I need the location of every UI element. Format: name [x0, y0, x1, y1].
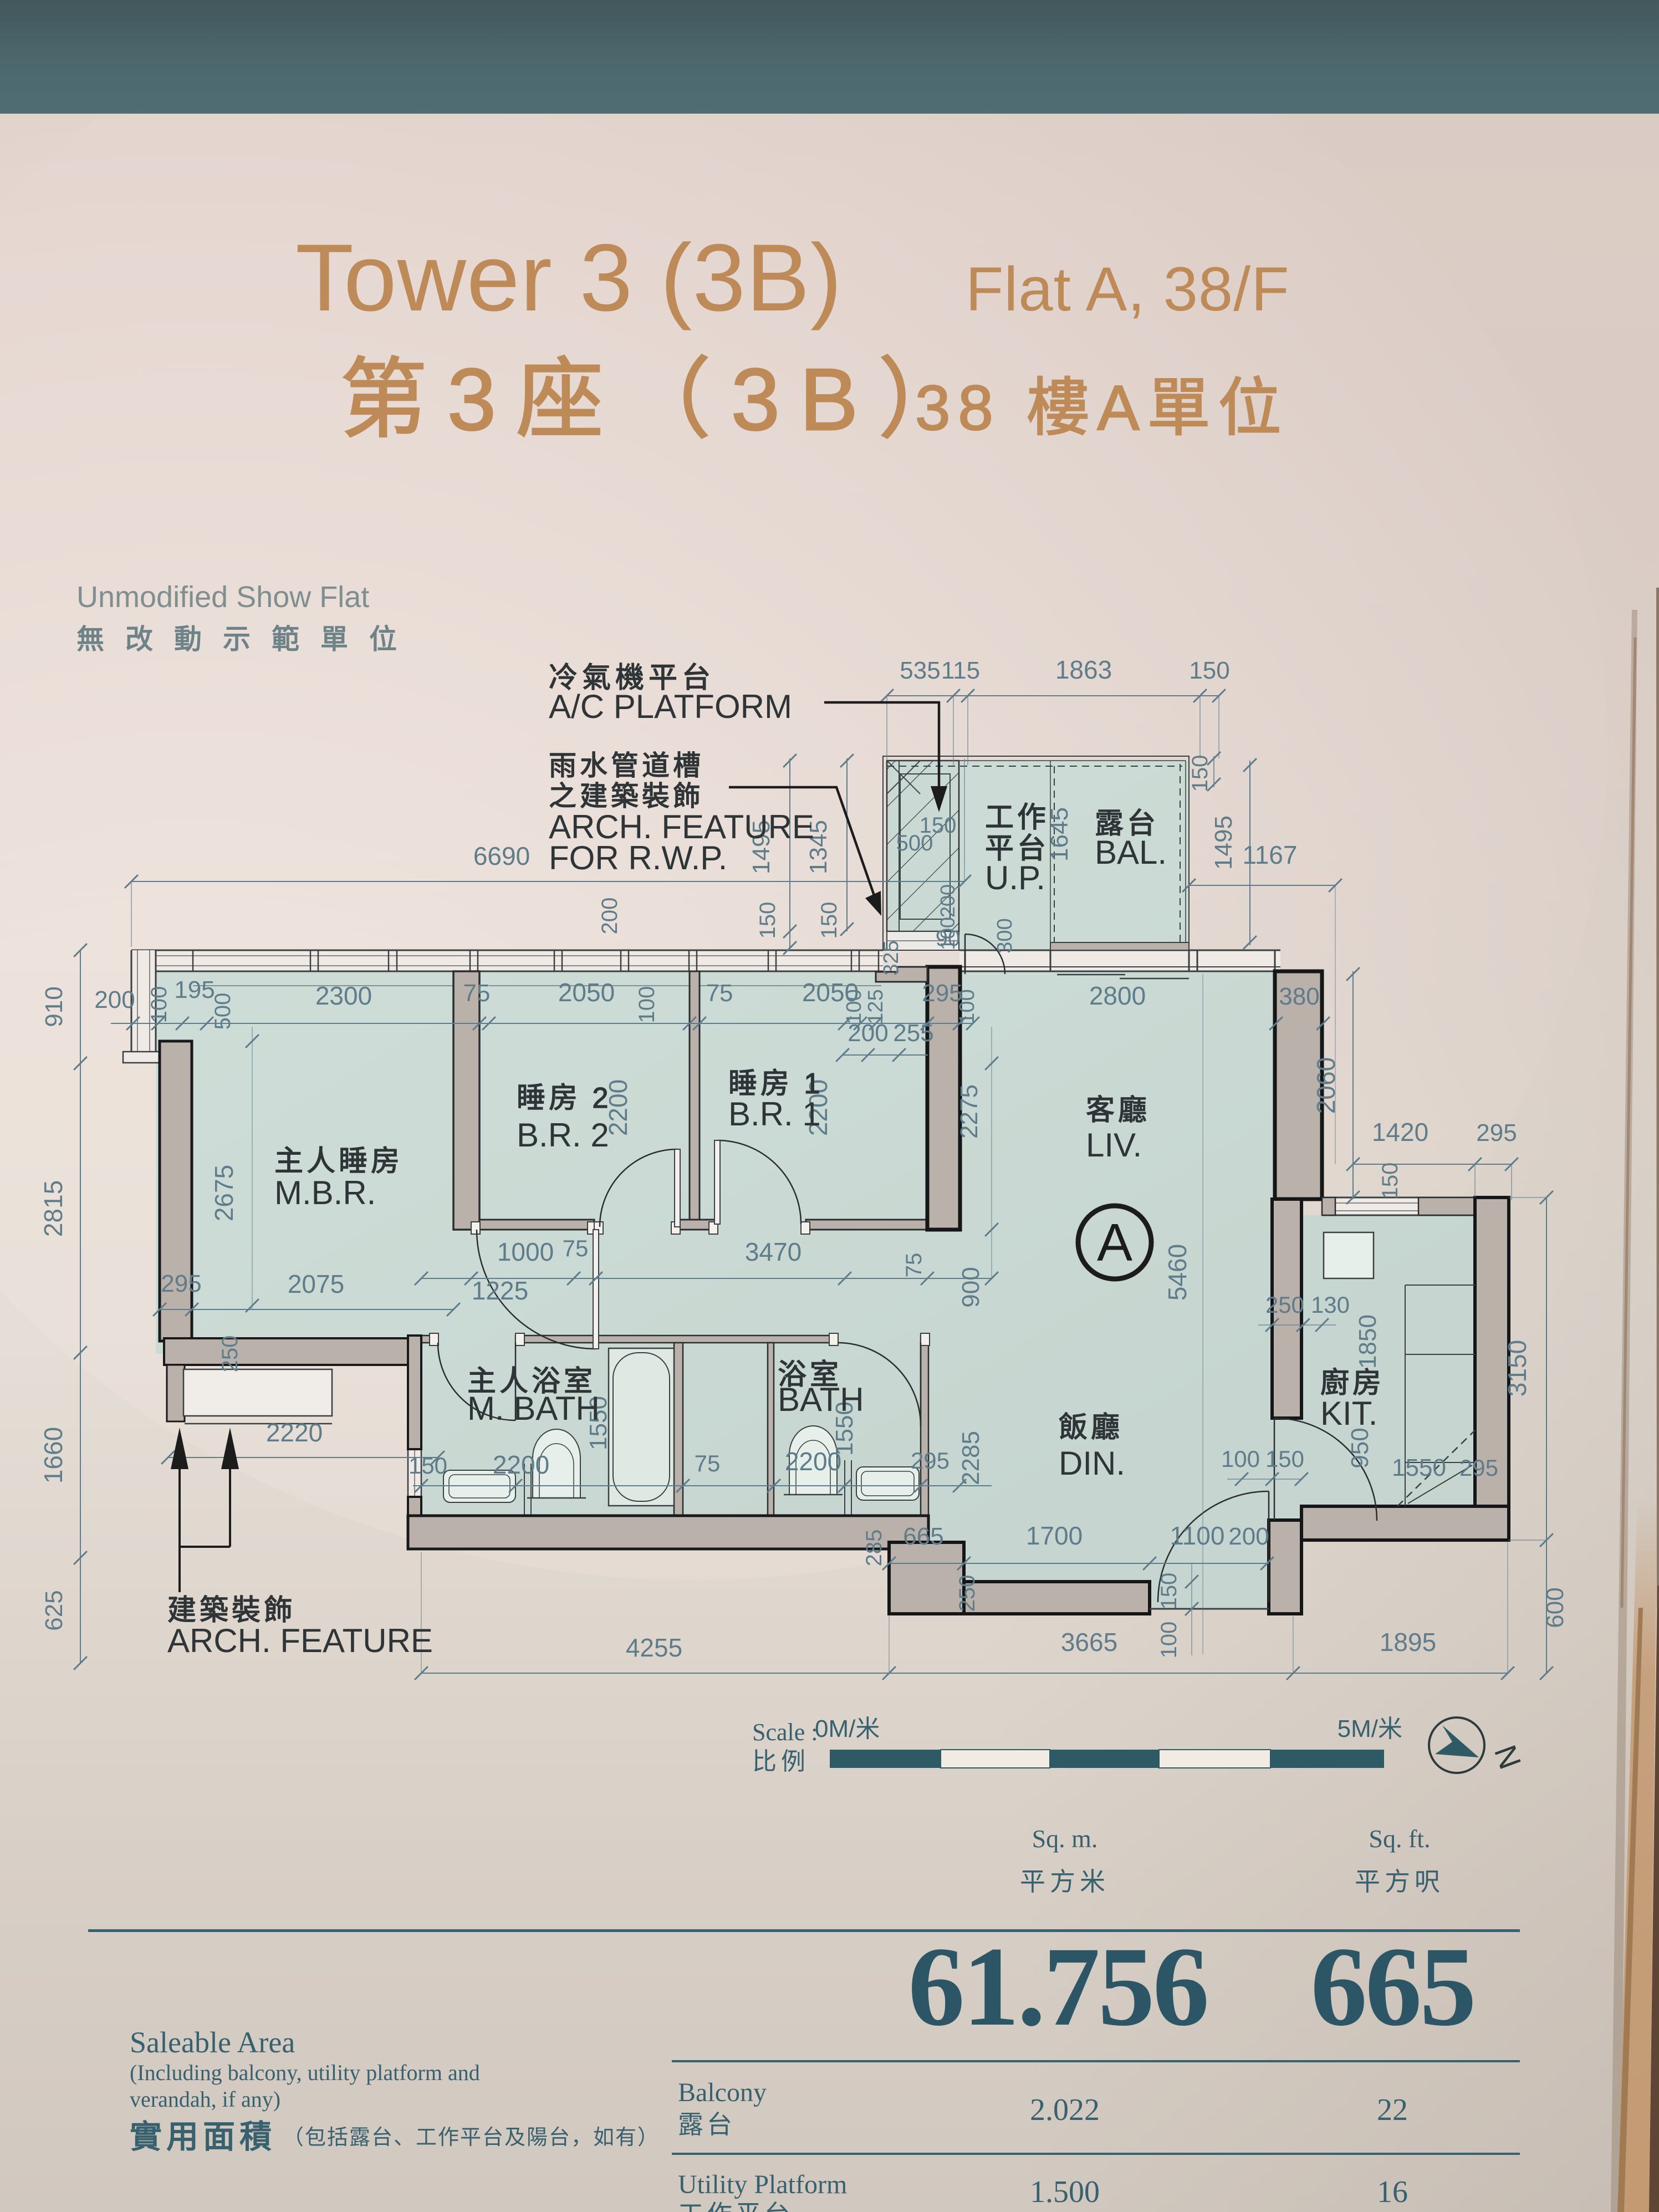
svg-text:250: 250	[1265, 1292, 1304, 1318]
svg-text:295: 295	[911, 1448, 950, 1474]
svg-text:295: 295	[161, 1270, 201, 1297]
svg-text:6690: 6690	[473, 842, 530, 870]
svg-text:工作平台: 工作平台	[678, 2200, 793, 2212]
svg-text:1700: 1700	[1026, 1521, 1083, 1550]
svg-text:1000: 1000	[497, 1237, 554, 1266]
svg-text:Tower 3 (3B): Tower 3 (3B)	[295, 225, 843, 331]
svg-text:500: 500	[211, 993, 235, 1030]
svg-text:2675: 2675	[210, 1165, 238, 1221]
svg-text:200: 200	[848, 1020, 888, 1047]
svg-text:2800: 2800	[1089, 981, 1146, 1010]
svg-text:3470: 3470	[745, 1237, 802, 1266]
svg-text:100: 100	[1157, 1622, 1181, 1659]
svg-text:A: A	[1097, 1213, 1132, 1272]
svg-text:150: 150	[920, 813, 957, 838]
svg-text:100: 100	[956, 989, 979, 1024]
svg-text:1100: 1100	[1170, 1521, 1225, 1550]
svg-text:露台: 露台	[678, 2110, 736, 2139]
svg-text:之建築裝飾: 之建築裝飾	[549, 781, 704, 812]
svg-text:睡房 2: 睡房 2	[517, 1082, 611, 1114]
svg-text:75: 75	[563, 1235, 589, 1261]
svg-text:B.R. 2: B.R. 2	[517, 1117, 609, 1154]
svg-text:Unmodified Show Flat: Unmodified Show Flat	[76, 580, 369, 614]
svg-text:1895: 1895	[1380, 1628, 1436, 1657]
svg-text:195: 195	[174, 976, 215, 1003]
svg-text:115: 115	[941, 657, 980, 684]
svg-text:BATH: BATH	[778, 1381, 864, 1418]
svg-text:（包括露台、工作平台及陽台，如有）: （包括露台、工作平台及陽台，如有）	[283, 2126, 660, 2149]
svg-text:Balcony: Balcony	[678, 2078, 767, 2107]
svg-text:130: 130	[1311, 1292, 1350, 1318]
svg-text:665: 665	[903, 1523, 943, 1550]
svg-text:0M/米: 0M/米	[815, 1715, 880, 1742]
svg-text:實用面積: 實用面積	[130, 2119, 276, 2155]
svg-text:1863: 1863	[1055, 655, 1112, 684]
svg-text:150: 150	[1188, 755, 1212, 792]
svg-text:ARCH. FEATURE: ARCH. FEATURE	[167, 1622, 433, 1659]
svg-text:2200: 2200	[493, 1450, 549, 1479]
svg-text:A/C PLATFORM: A/C PLATFORM	[549, 688, 792, 725]
svg-text:295: 295	[1459, 1455, 1498, 1481]
svg-text:DIN.: DIN.	[1059, 1445, 1125, 1482]
svg-text:150: 150	[817, 902, 841, 939]
svg-text:1.500: 1.500	[1030, 2175, 1100, 2209]
svg-text:625: 625	[40, 1590, 68, 1630]
svg-text:100: 100	[147, 986, 171, 1023]
svg-text:150: 150	[1157, 1573, 1181, 1610]
svg-text:250: 250	[955, 1575, 979, 1612]
svg-text:910: 910	[40, 986, 68, 1027]
svg-text:300: 300	[993, 918, 1017, 953]
svg-text:M. BATH: M. BATH	[467, 1390, 600, 1427]
svg-text:第3座（3B）: 第3座（3B）	[340, 351, 986, 448]
svg-text:5460: 5460	[1163, 1244, 1192, 1301]
svg-text:U.P.: U.P.	[985, 859, 1045, 896]
svg-text:600: 600	[1541, 1587, 1569, 1628]
svg-text:3665: 3665	[1061, 1628, 1117, 1657]
svg-text:900: 900	[957, 1267, 984, 1307]
svg-text:75: 75	[695, 1450, 721, 1476]
svg-text:3150: 3150	[1503, 1340, 1532, 1396]
svg-text:主人睡房: 主人睡房	[274, 1145, 403, 1178]
svg-text:150: 150	[1265, 1446, 1304, 1472]
svg-text:2050: 2050	[558, 978, 615, 1007]
svg-text:FOR R.W.P.: FOR R.W.P.	[549, 839, 727, 876]
svg-text:200: 200	[936, 884, 959, 918]
svg-text:285: 285	[862, 1530, 886, 1567]
svg-text:75: 75	[463, 980, 491, 1007]
svg-text:雨水管道槽: 雨水管道槽	[549, 750, 704, 781]
svg-text:2285: 2285	[957, 1431, 984, 1485]
svg-text:1225: 1225	[472, 1276, 528, 1305]
svg-text:BAL.: BAL.	[1095, 834, 1167, 871]
svg-text:150: 150	[409, 1452, 447, 1479]
svg-text:1660: 1660	[39, 1427, 68, 1484]
svg-text:1167: 1167	[1243, 840, 1298, 869]
svg-text:工作: 工作	[985, 802, 1049, 834]
svg-text:無改動示範單位: 無改動示範單位	[76, 624, 418, 655]
svg-text:Sq. ft.: Sq. ft.	[1369, 1824, 1430, 1853]
svg-text:2060: 2060	[1311, 1057, 1340, 1114]
svg-text:200: 200	[598, 898, 622, 935]
svg-text:2220: 2220	[266, 1418, 323, 1447]
svg-text:1645: 1645	[1046, 807, 1073, 862]
svg-text:KIT.: KIT.	[1320, 1395, 1377, 1432]
svg-text:200: 200	[1228, 1523, 1269, 1550]
svg-text:2275: 2275	[956, 1084, 983, 1139]
svg-text:比例: 比例	[752, 1748, 810, 1775]
svg-text:1420: 1420	[1372, 1118, 1428, 1146]
svg-text:Saleable Area: Saleable Area	[130, 2026, 295, 2059]
svg-text:平方米: 平方米	[1020, 1867, 1110, 1896]
svg-text:75: 75	[902, 1253, 926, 1278]
svg-text:B.R. 1: B.R. 1	[728, 1095, 821, 1133]
svg-text:100: 100	[1221, 1446, 1260, 1472]
svg-text:380: 380	[1279, 983, 1319, 1010]
svg-text:Utility Platform: Utility Platform	[678, 2170, 847, 2199]
svg-text:Flat A, 38/F: Flat A, 38/F	[966, 254, 1290, 324]
svg-text:665: 665	[1310, 1924, 1474, 2050]
svg-text:61.756: 61.756	[908, 1924, 1207, 2050]
svg-text:1550: 1550	[1392, 1454, 1446, 1481]
svg-text:16: 16	[1377, 2175, 1408, 2209]
svg-text:150: 150	[756, 902, 780, 939]
svg-text:4255: 4255	[626, 1633, 682, 1662]
svg-text:90: 90	[936, 926, 961, 951]
svg-text:22: 22	[1377, 2093, 1408, 2127]
svg-text:950: 950	[1346, 1428, 1374, 1468]
svg-text:Scale :: Scale :	[752, 1719, 818, 1746]
svg-text:75: 75	[706, 980, 733, 1007]
svg-text:1850: 1850	[1354, 1314, 1381, 1369]
svg-text:2815: 2815	[39, 1180, 68, 1237]
svg-text:飯廳: 飯廳	[1059, 1411, 1123, 1444]
svg-text:535: 535	[900, 657, 940, 684]
svg-text:200: 200	[94, 986, 135, 1013]
svg-text:M.B.R.: M.B.R.	[274, 1174, 376, 1211]
svg-text:1495: 1495	[1210, 816, 1237, 870]
svg-text:100: 100	[635, 986, 659, 1023]
svg-text:平方呎: 平方呎	[1355, 1867, 1444, 1896]
svg-text:客廳: 客廳	[1086, 1094, 1150, 1127]
svg-text:255: 255	[893, 1020, 933, 1047]
svg-text:Sq. m.: Sq. m.	[1032, 1824, 1098, 1853]
svg-text:250: 250	[218, 1336, 242, 1373]
svg-text:2300: 2300	[315, 981, 372, 1010]
svg-text:2.022: 2.022	[1030, 2093, 1100, 2127]
svg-text:LIV.: LIV.	[1086, 1127, 1142, 1164]
svg-text:38 樓A單位: 38 樓A單位	[915, 373, 1289, 444]
svg-text:verandah, if any): verandah, if any)	[130, 2087, 280, 2112]
svg-text:2075: 2075	[288, 1270, 344, 1298]
svg-text:5M/米: 5M/米	[1338, 1715, 1402, 1742]
svg-text:150: 150	[1378, 1163, 1402, 1200]
svg-text:(Including balcony, utility pl: (Including balcony, utility platform and	[130, 2060, 480, 2085]
svg-text:325: 325	[880, 940, 903, 975]
svg-text:150: 150	[1189, 657, 1229, 684]
svg-text:295: 295	[1476, 1119, 1517, 1146]
